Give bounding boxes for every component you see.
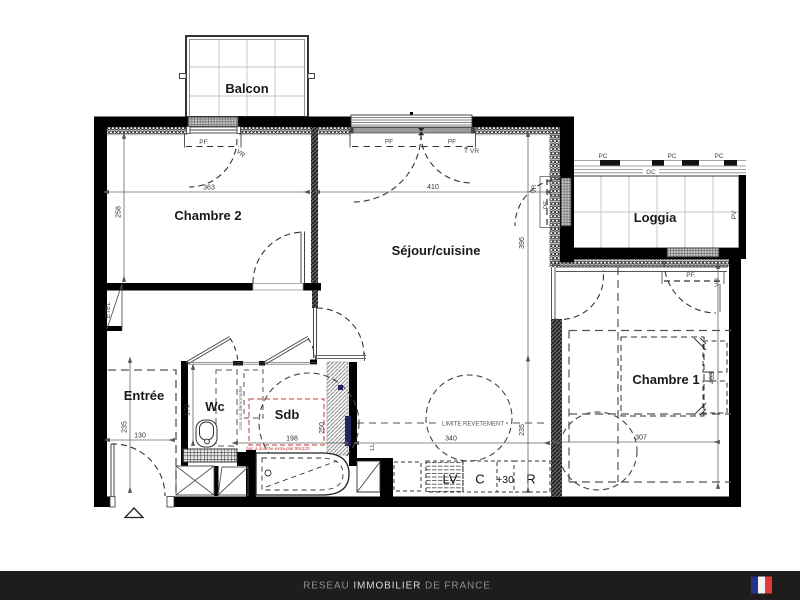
svg-text:bac à douche extra-plat 90x120: bac à douche extra-plat 90x120 bbox=[246, 446, 310, 451]
svg-text:340: 340 bbox=[445, 436, 457, 443]
svg-text:+30: +30 bbox=[496, 474, 514, 486]
svg-text:250: 250 bbox=[319, 422, 326, 434]
svg-text:LL: LL bbox=[369, 443, 376, 451]
svg-text:PF: PF bbox=[385, 139, 393, 146]
svg-text:Wc: Wc bbox=[205, 399, 225, 414]
svg-text:Balcon: Balcon bbox=[225, 81, 268, 96]
svg-text:PC: PC bbox=[714, 153, 723, 160]
svg-text:PC: PC bbox=[598, 153, 607, 160]
svg-text:235: 235 bbox=[122, 421, 129, 433]
svg-text:363: 363 bbox=[203, 185, 215, 192]
svg-text:C: C bbox=[475, 472, 484, 487]
svg-text:235: 235 bbox=[519, 424, 526, 436]
svg-text:PF.: PF. bbox=[686, 272, 696, 279]
svg-text:Chambre 2: Chambre 2 bbox=[174, 208, 241, 223]
svg-text:307: 307 bbox=[635, 435, 647, 442]
svg-text:410: 410 bbox=[427, 184, 439, 191]
svg-text:Entrée: Entrée bbox=[124, 388, 164, 403]
svg-text:RESEAU IMMOBILIER DE FRANCE: RESEAU IMMOBILIER DE FRANCE bbox=[303, 581, 491, 592]
svg-text:Séjour/cuisine: Séjour/cuisine bbox=[392, 243, 481, 258]
svg-text:198: 198 bbox=[286, 436, 298, 443]
svg-text:PC: PC bbox=[667, 153, 676, 160]
svg-text:clos son démontable: clos son démontable bbox=[238, 386, 244, 430]
svg-text:LV: LV bbox=[443, 472, 458, 487]
svg-text:Sdb: Sdb bbox=[275, 407, 300, 422]
svg-text:GC: GC bbox=[646, 169, 656, 176]
svg-text:PF: PF bbox=[448, 139, 456, 146]
svg-text:170: 170 bbox=[185, 404, 192, 416]
svg-text:258: 258 bbox=[116, 206, 123, 218]
svg-text:ETEL: ETEL bbox=[105, 301, 112, 318]
svg-text:403: 403 bbox=[709, 372, 716, 384]
svg-text:VR: VR bbox=[714, 278, 721, 287]
svg-text:Chambre 1: Chambre 1 bbox=[632, 372, 699, 387]
svg-text:LIMITE REVETEMENT: LIMITE REVETEMENT bbox=[442, 422, 504, 428]
svg-text:VR: VR bbox=[470, 148, 479, 155]
svg-text:396: 396 bbox=[519, 237, 526, 249]
svg-text:Loggia: Loggia bbox=[634, 210, 677, 225]
svg-text:PF.: PF. bbox=[199, 139, 209, 146]
svg-text:PV: PV bbox=[731, 210, 738, 219]
svg-text:PF: PF bbox=[543, 201, 550, 209]
svg-text:130: 130 bbox=[134, 433, 146, 440]
